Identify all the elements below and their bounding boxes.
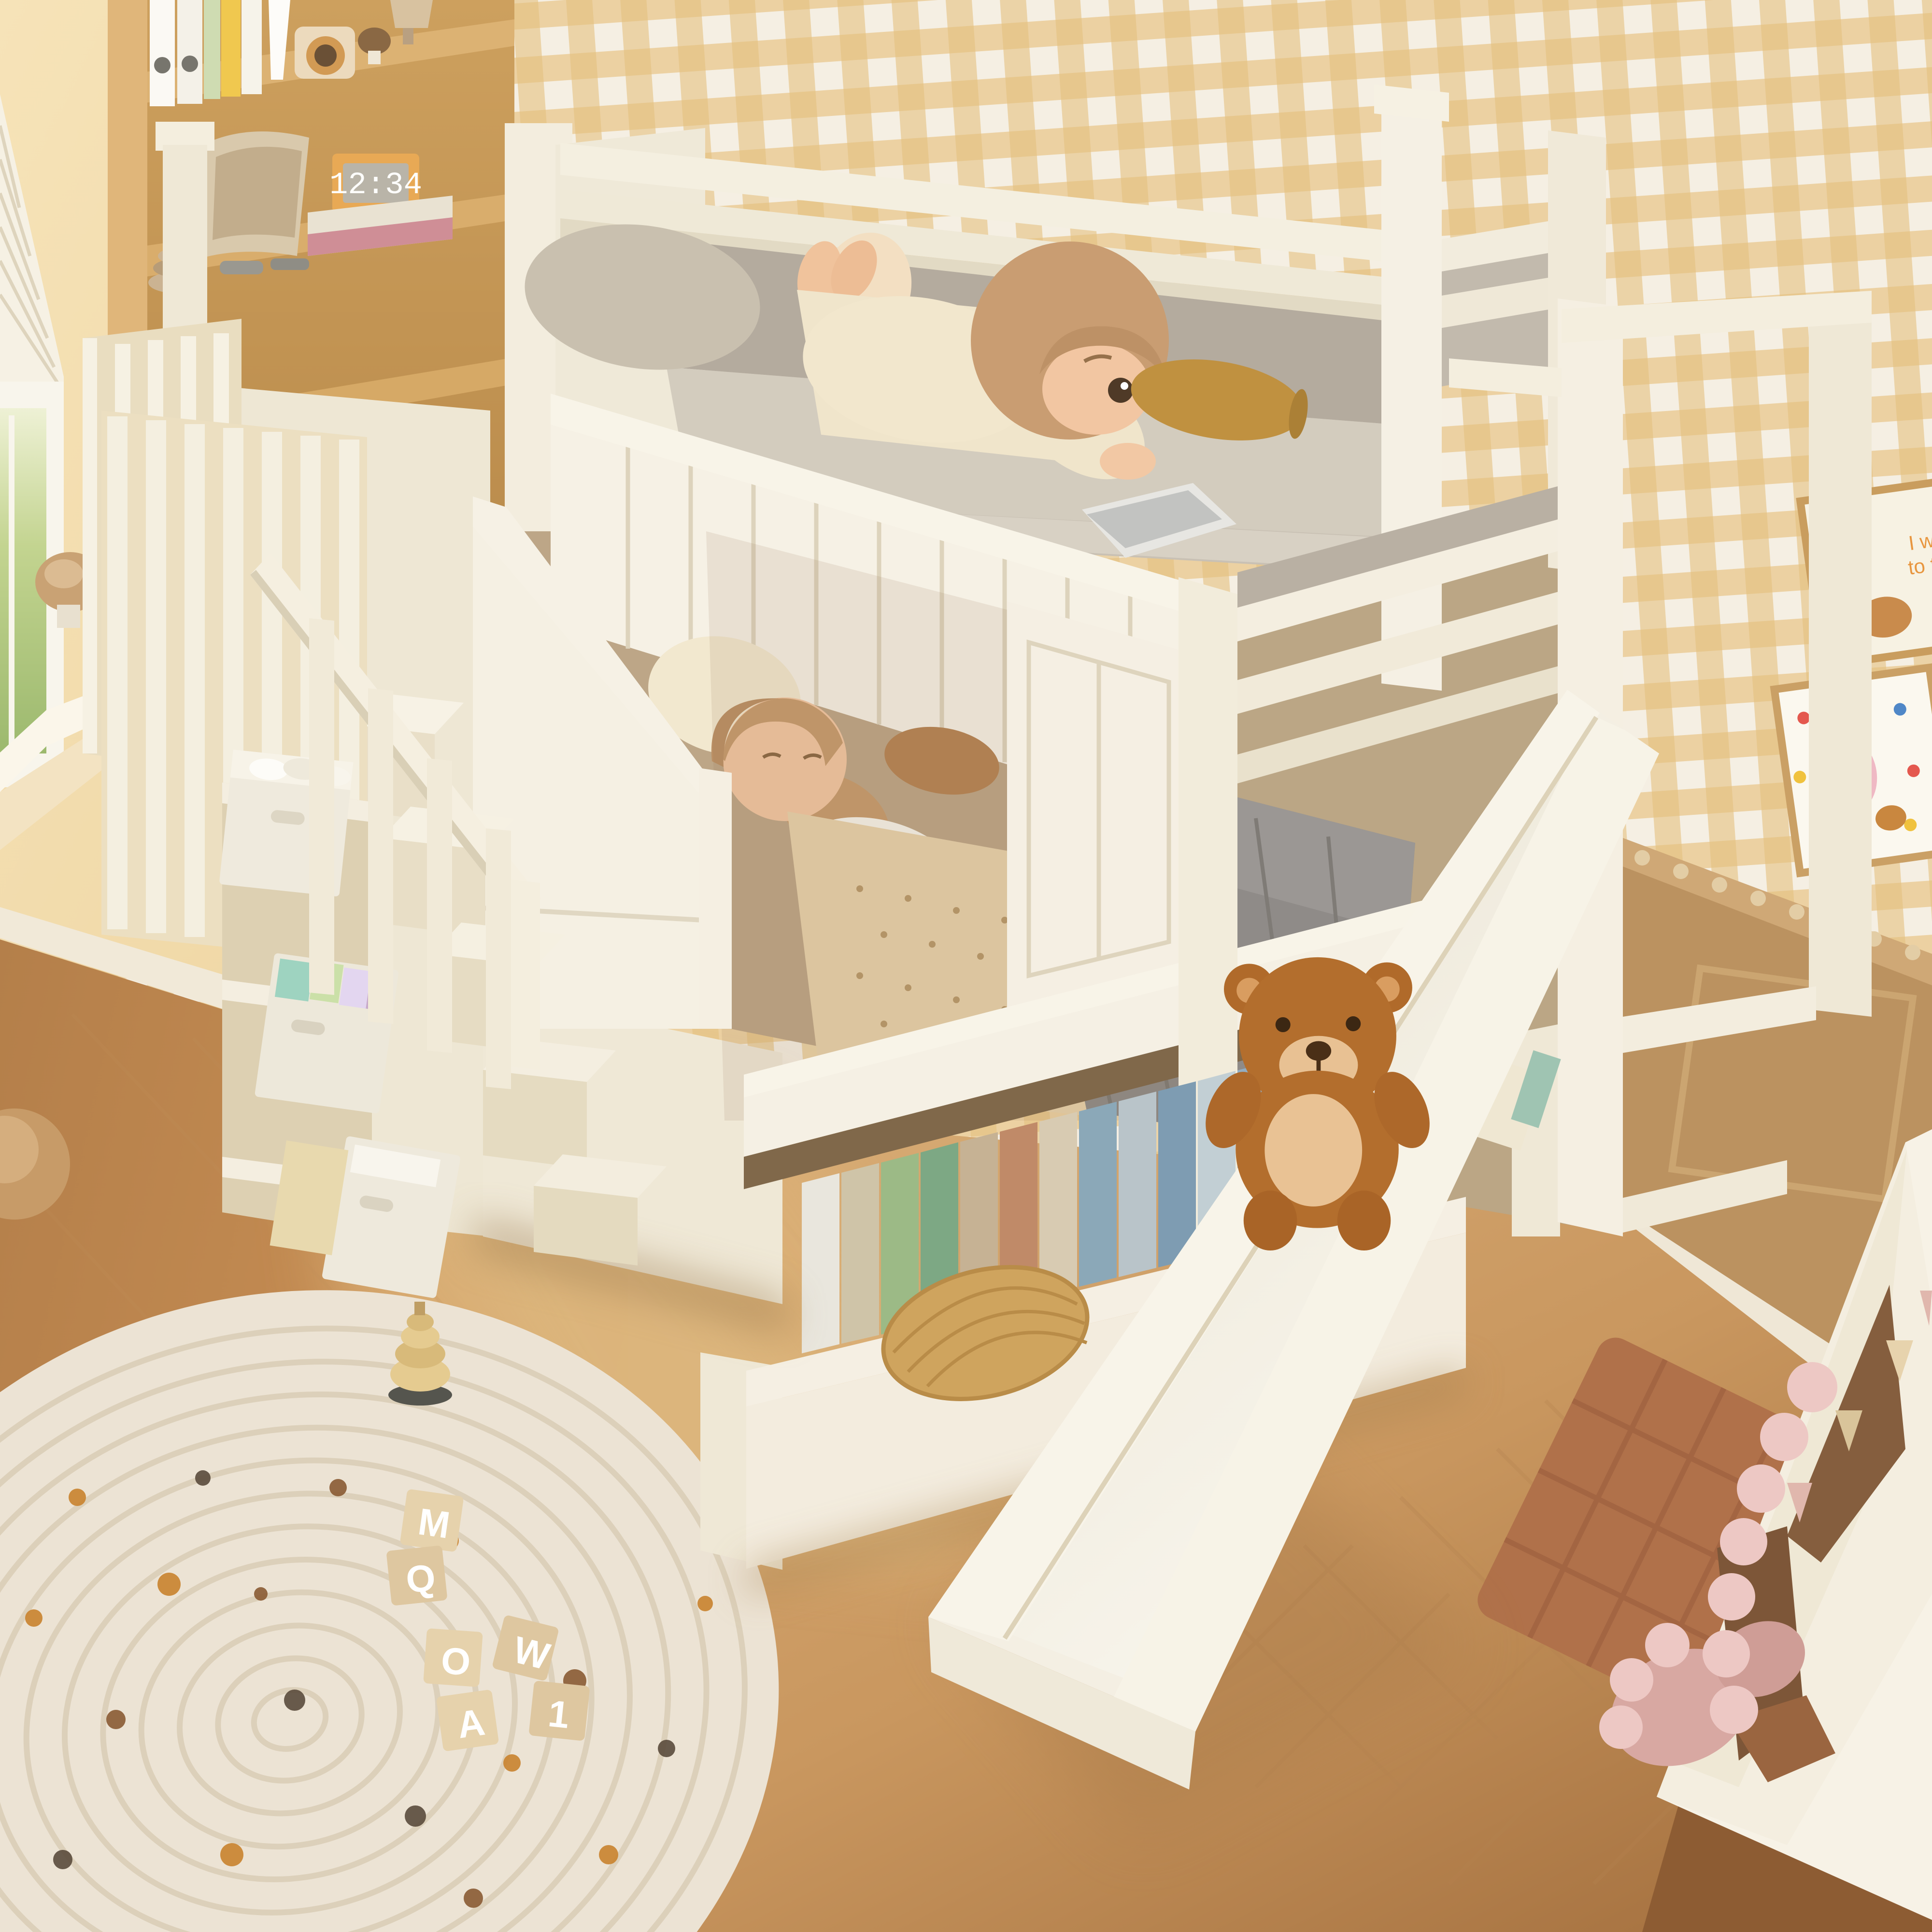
svg-text:to t: to t bbox=[1906, 553, 1932, 579]
svg-text:Q: Q bbox=[404, 1556, 438, 1601]
svg-text:12:34: 12:34 bbox=[329, 168, 422, 203]
svg-text:M: M bbox=[415, 1500, 453, 1547]
svg-text:1: 1 bbox=[546, 1692, 571, 1736]
svg-text:O: O bbox=[440, 1639, 472, 1683]
